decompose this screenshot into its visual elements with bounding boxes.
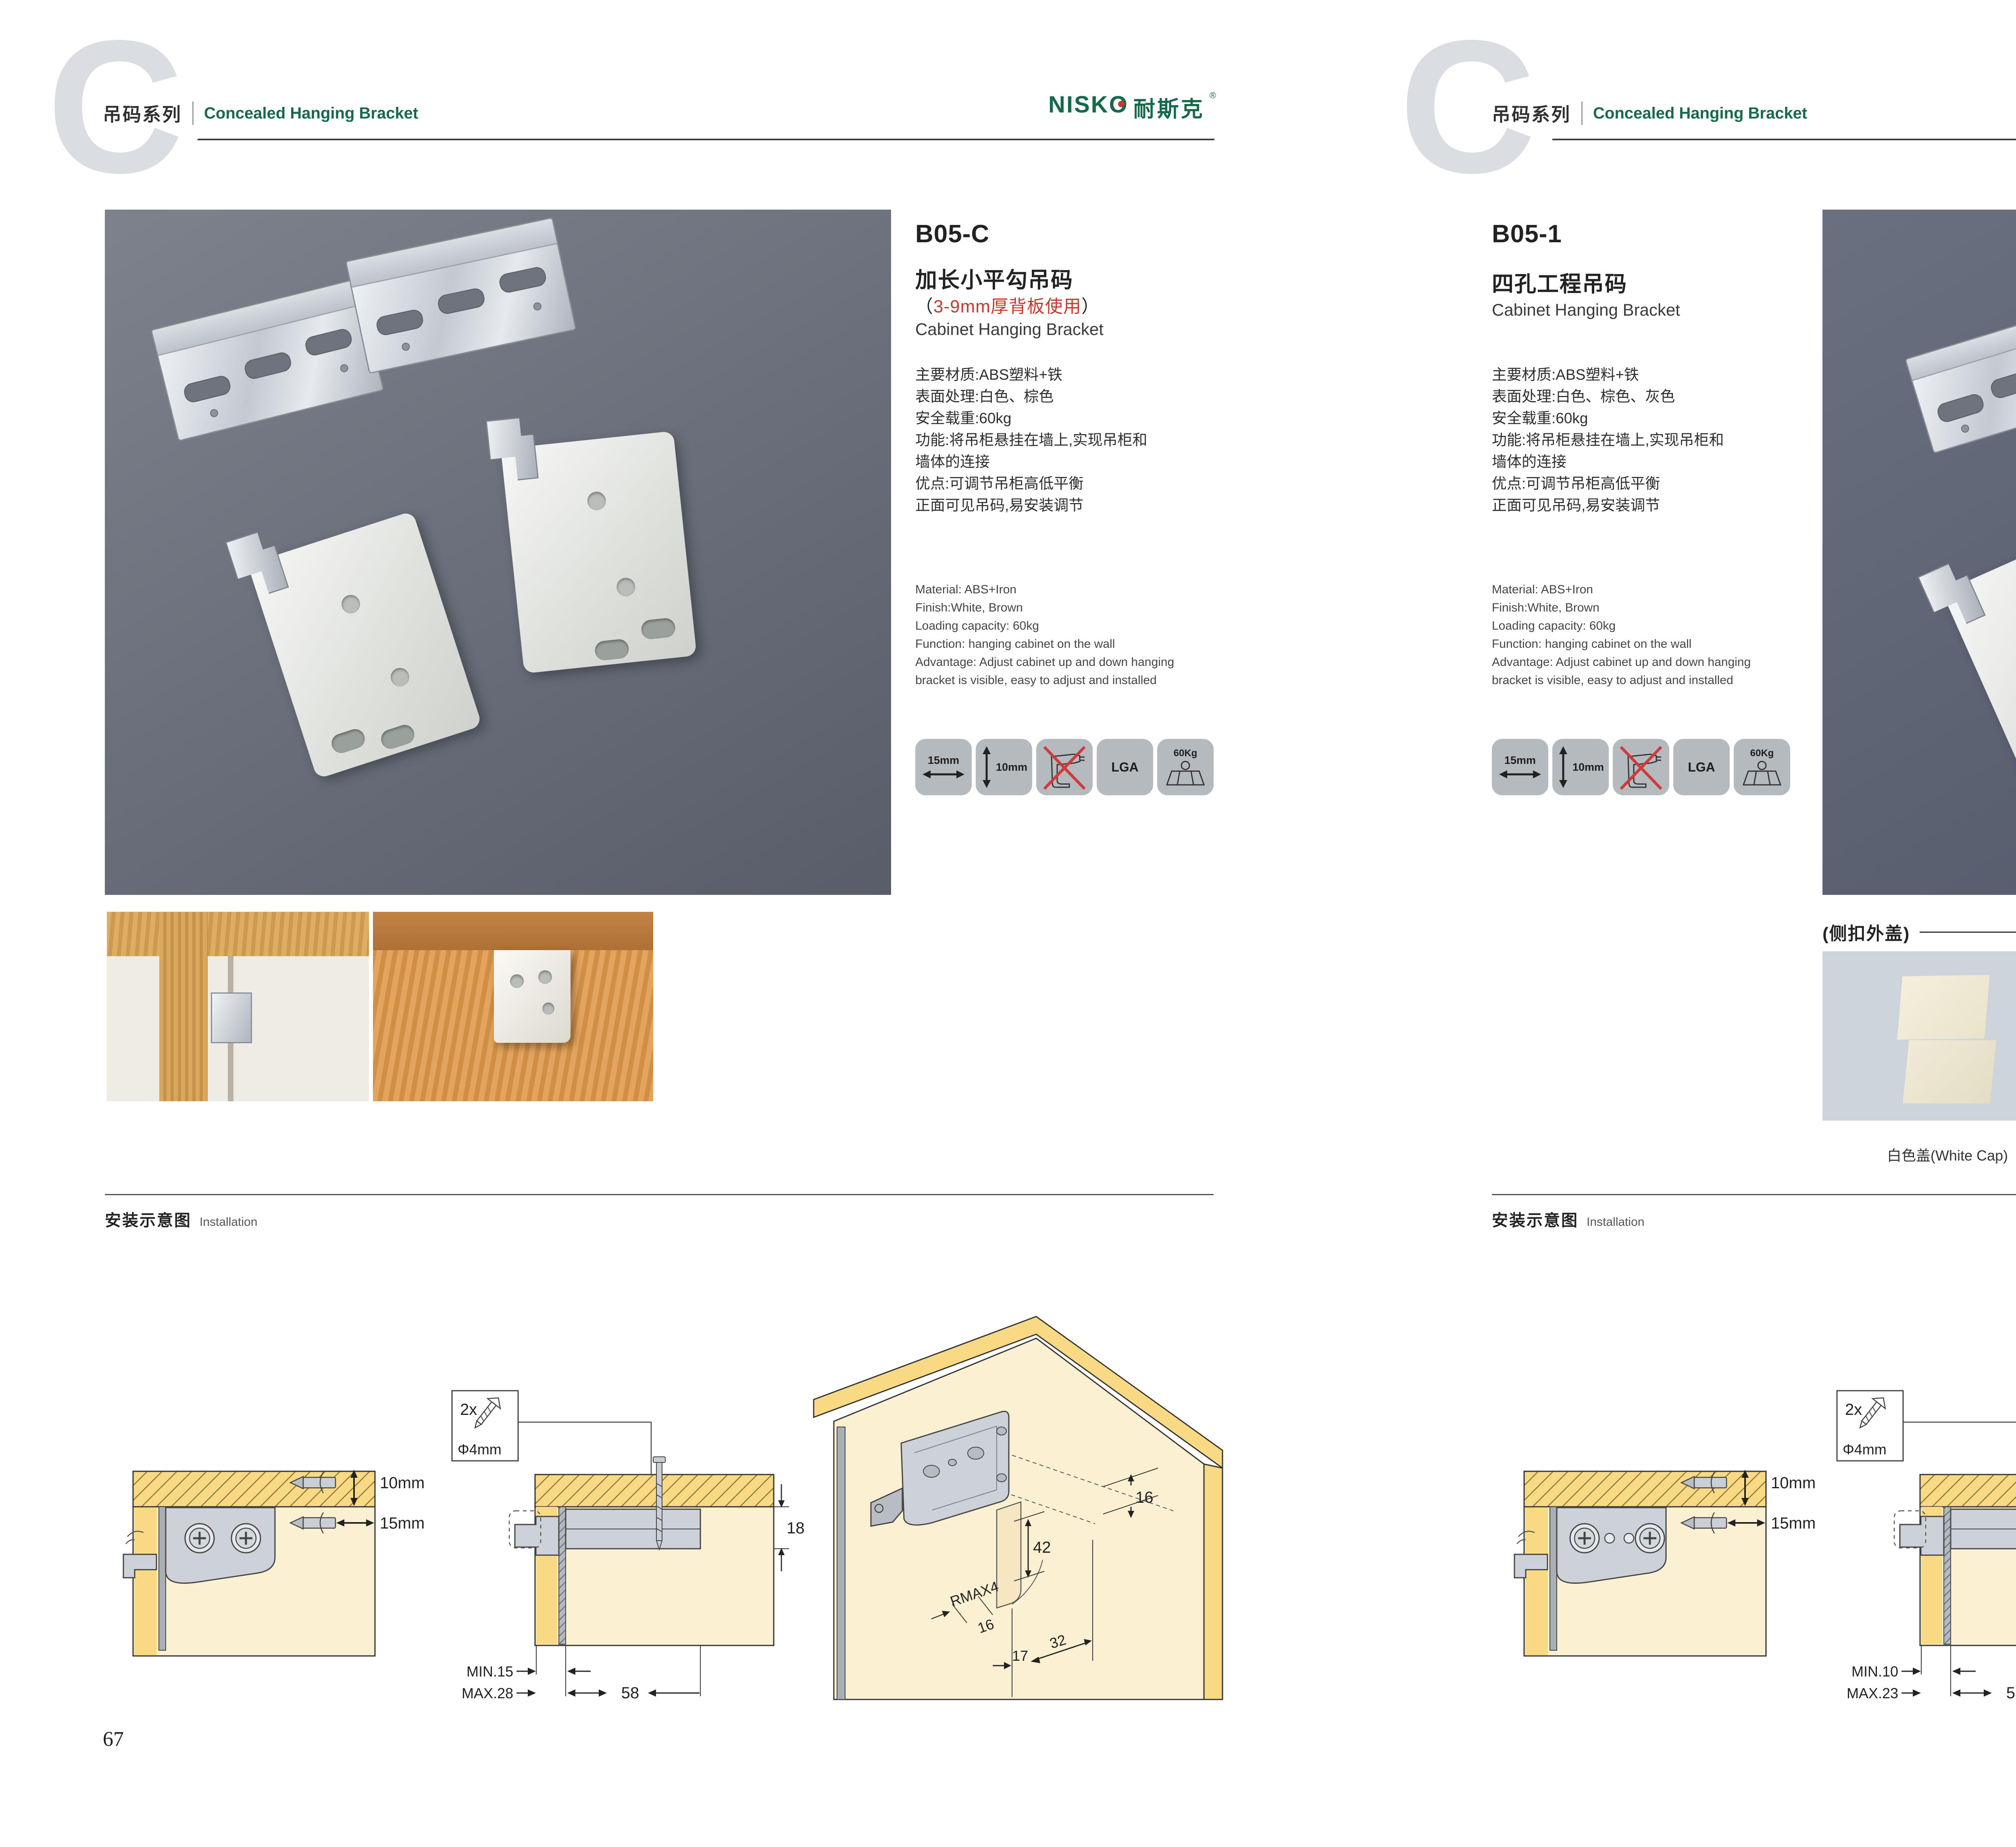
diagram-front-section: 2x Φ4mm 18 MIN.15 MAX.28 [442, 1383, 812, 1705]
white-bracket-body [501, 431, 697, 674]
plate-slot [182, 374, 232, 404]
series-subtitle: Concealed Hanging Bracket [204, 104, 418, 123]
diagram-front-section: 2x Φ4mm 18 MIN.10 MAX.23 [1826, 1383, 2016, 1705]
plate-slot [243, 351, 293, 381]
cap-caption: 白色盖(White Cap) [1822, 1144, 2016, 1165]
load-60kg-icon: 60Kg [1734, 739, 1790, 795]
plate-slot [1989, 368, 2016, 400]
page-number: 67 [103, 1727, 124, 1751]
plate-hole [533, 302, 542, 311]
diagram-perspective: 16 42 RMAX4 16 17 32 [810, 1282, 1230, 1709]
screw-qty: 2x [1845, 1401, 1862, 1419]
catalog-spread: C 吊码系列 Concealed Hanging Bracket NISKO 耐… [0, 0, 2016, 1847]
installation-title-cn: 安装示意图 [105, 1207, 192, 1231]
product-note: （3-9mm厚背板使用） [915, 292, 1100, 318]
spec-line: bracket is visible, easy to adjust and i… [915, 671, 1174, 689]
series-title: 吊码系列 [1492, 100, 1571, 127]
no-drill-icon [1613, 739, 1669, 795]
dim-max: MAX.23 [1847, 1685, 1898, 1701]
dim-16-top: 16 [1135, 1489, 1154, 1506]
installation-header: 安装示意图 Installation [1492, 1207, 1644, 1231]
spec-line: Finish:White, Brown [915, 599, 1174, 617]
spec-line: bracket is visible, easy to adjust and i… [1492, 671, 1751, 689]
page-header: 吊码系列 Concealed Hanging Bracket [103, 100, 418, 127]
dim-58: 58 [2006, 1684, 2016, 1702]
series-subtitle: Concealed Hanging Bracket [1593, 104, 1807, 123]
spec-line: Material: ABS+Iron [915, 580, 1174, 599]
cap-bottom [1899, 1036, 1999, 1108]
bracket-hook [1917, 558, 1985, 634]
bracket-hole [1605, 1533, 1614, 1543]
product-name-en: Cabinet Hanging Bracket [1492, 300, 1680, 320]
dim-min: MIN.10 [1851, 1663, 1898, 1680]
metal-rail-plate [345, 217, 577, 374]
dim-min: MIN.15 [467, 1663, 513, 1680]
icon-label: 10mm [1572, 761, 1604, 774]
installation-rule [1492, 1194, 2016, 1195]
dim-10mm: 10mm [380, 1474, 425, 1492]
width-15mm-icon: 15mm [915, 739, 972, 795]
plate-hole [401, 342, 411, 352]
icon-label: 60Kg [1174, 748, 1198, 759]
v-arrow-icon [981, 746, 993, 788]
header-divider [192, 102, 194, 125]
product-code: B05-C [915, 220, 989, 248]
dim-15mm: 15mm [380, 1514, 425, 1532]
page-67: C 吊码系列 Concealed Hanging Bracket NISKO 耐… [0, 0, 1352, 1847]
spec-line: Function: hanging cabinet on the wall [1492, 635, 1751, 653]
icon-label: LGA [1688, 760, 1715, 775]
series-title: 吊码系列 [103, 100, 182, 127]
height-10mm-icon: 10mm [1552, 739, 1609, 795]
spec-line: Advantage: Adjust cabinet up and down ha… [915, 653, 1174, 671]
no-drill-glyph [1041, 744, 1088, 790]
v-arrow-icon [1557, 746, 1569, 788]
cap-photo-white [1822, 951, 2016, 1121]
bracket-oval-hole [329, 727, 367, 756]
plate-hole [1960, 424, 1970, 434]
dim-58: 58 [621, 1684, 639, 1702]
product-name-cn: 四孔工程吊码 [1492, 266, 1627, 298]
icon-label: LGA [1111, 760, 1139, 775]
spec-line: 表面处理:白色、棕色、灰色 [1492, 386, 1724, 408]
screw [1635, 1524, 1664, 1553]
application-photo-bracket [373, 912, 653, 1101]
specs-cn: 主要材质:ABS塑料+铁 表面处理:白色、棕色 安全载重:60kg 功能:将吊柜… [915, 364, 1148, 516]
product-photo-b051 [1822, 210, 2016, 895]
plate-hole [339, 363, 349, 373]
wood-rail-top [107, 912, 369, 956]
height-10mm-icon: 10mm [976, 739, 1032, 795]
bracket-hole [339, 593, 362, 616]
wall-rail [837, 1427, 845, 1699]
icon-label: 15mm [1504, 754, 1536, 767]
bracket-hole [586, 491, 607, 512]
caps-rule [1920, 932, 2016, 933]
spec-line: Function: hanging cabinet on the wall [915, 635, 1174, 653]
bracket-hook [225, 528, 289, 602]
product-note-red: 3-9mm厚背板使用 [933, 297, 1081, 316]
hook-profile [515, 1516, 559, 1555]
plate-hole [209, 408, 219, 418]
installation-title-en: Installation [200, 1215, 257, 1229]
bracket-oval-hole [594, 639, 630, 661]
spec-line: 优点:可调节吊柜高低平衡 [915, 473, 1148, 495]
bracket-hole [1624, 1533, 1634, 1543]
cap-top [1893, 970, 1994, 1044]
icon-label: 60Kg [1750, 748, 1774, 759]
installation-header: 安装示意图 Installation [105, 1207, 257, 1231]
bracket-hole [616, 577, 636, 597]
installation-title-cn: 安装示意图 [1492, 1207, 1579, 1231]
spec-line: 主要材质:ABS塑料+铁 [915, 364, 1148, 386]
screw-qty: 2x [460, 1401, 477, 1419]
plate-slot [304, 327, 354, 358]
no-drill-icon [1036, 739, 1093, 795]
dim-17: 17 [1012, 1647, 1028, 1664]
bracket-oval-hole [379, 722, 417, 751]
brand-logo-cn: 耐斯克 [1133, 91, 1205, 123]
product-photo-b05c [105, 210, 891, 895]
spec-line: Loading capacity: 60kg [1492, 617, 1751, 635]
bracket-screw [542, 1003, 554, 1015]
h-arrow-icon [923, 768, 964, 780]
metal-rail-plate [150, 279, 384, 442]
white-bracket-installed [494, 950, 571, 1043]
installation-title-en: Installation [1587, 1215, 1644, 1229]
width-15mm-icon: 15mm [1492, 739, 1548, 795]
bracket-hole [388, 666, 412, 689]
white-bracket-body [248, 511, 482, 779]
feature-icons: 15mm 10mm LGA 60Kg [1492, 739, 1790, 795]
dim-max: MAX.28 [462, 1685, 513, 1701]
installation-rule [105, 1194, 1214, 1195]
spec-line: 正面可见吊码,易安装调节 [915, 495, 1148, 516]
bracket-hook [485, 416, 539, 483]
bracket-screw [538, 970, 552, 984]
spec-line: Finish:White, Brown [1492, 599, 1751, 617]
header-divider [1581, 102, 1583, 125]
header-rule [198, 139, 1214, 140]
weight-icon [1165, 761, 1206, 786]
icon-label: 10mm [996, 761, 1027, 774]
dim-18: 18 [787, 1519, 805, 1537]
screw-dia: Φ4mm [1843, 1441, 1887, 1458]
application-photo-hook [107, 912, 369, 1101]
dim-42: 42 [1033, 1539, 1051, 1556]
spec-line: 安全载重:60kg [915, 408, 1148, 429]
caps-label: (侧扣外盖) [1822, 919, 1910, 945]
page-68: C 吊码系列 Concealed Hanging Bracket NISKO 耐… [1352, 0, 2016, 1847]
spec-line: 安全载重:60kg [1492, 408, 1724, 429]
bracket-screw [510, 974, 524, 988]
feature-icons: 15mm 10mm LGA 60Kg [915, 739, 1214, 795]
load-60kg-icon: 60Kg [1157, 739, 1214, 795]
screw [185, 1524, 214, 1553]
diagram-side-section: 10mm 15mm [1508, 1435, 1847, 1677]
icon-label: 15mm [928, 754, 959, 767]
spec-line: 主要材质:ABS塑料+铁 [1492, 364, 1724, 386]
lga-cert-icon: LGA [1097, 739, 1153, 795]
page-header: 吊码系列 Concealed Hanging Bracket [1492, 100, 1807, 127]
bracket-oval-hole [640, 617, 676, 640]
white-bracket-body [1942, 516, 2016, 799]
plate-slot [375, 308, 425, 337]
plate-slot [1935, 392, 1986, 424]
product-name-cn: 加长小平勾吊码 [915, 262, 1073, 294]
cabinet-bottom-edge [373, 912, 653, 950]
weight-icon [1742, 761, 1782, 786]
spec-line: Advantage: Adjust cabinet up and down ha… [1492, 653, 1751, 671]
plate-slot [498, 266, 548, 294]
specs-en: Material: ABS+Iron Finish:White, Brown L… [915, 580, 1174, 689]
spec-line: 墙体的连接 [1492, 451, 1724, 473]
registered-mark: ® [1210, 90, 1216, 101]
dim-15mm: 15mm [1771, 1514, 1816, 1532]
logo-dot-icon [1118, 101, 1125, 107]
spec-line: 功能:将吊柜悬挂在墙上,实现吊柜和 [915, 429, 1148, 451]
metal-hook-clip [211, 992, 252, 1043]
spec-line: Loading capacity: 60kg [915, 617, 1174, 635]
spec-line: 墙体的连接 [915, 451, 1148, 473]
hook-profile [1900, 1516, 1944, 1555]
caps-header: (侧扣外盖) [1822, 919, 2016, 945]
specs-en: Material: ABS+Iron Finish:White, Brown L… [1492, 580, 1751, 689]
screw [1570, 1524, 1599, 1553]
no-drill-glyph [1618, 744, 1664, 790]
screw-dia: Φ4mm [458, 1441, 502, 1458]
wood-stile [159, 912, 208, 1101]
product-code: B05-1 [1492, 220, 1562, 248]
h-arrow-icon [1499, 768, 1541, 780]
cabinet-side-wall [1204, 1464, 1223, 1699]
plate-flange [1906, 308, 2016, 381]
header-rule [1552, 139, 2016, 140]
back-panel-slot [997, 1502, 1021, 1608]
lga-cert-icon: LGA [1673, 739, 1730, 795]
plate-slot [436, 287, 486, 316]
dim-10mm: 10mm [1771, 1474, 1816, 1492]
metal-rail-plate [1905, 306, 2016, 454]
spec-line: 表面处理:白色、棕色 [915, 386, 1148, 408]
screw [231, 1524, 260, 1553]
spec-line: Material: ABS+Iron [1492, 580, 1751, 599]
brand-logo-text: NISKO [1048, 91, 1129, 118]
spec-line: 优点:可调节吊柜高低平衡 [1492, 473, 1724, 495]
spec-line: 正面可见吊码,易安装调节 [1492, 495, 1724, 516]
specs-cn: 主要材质:ABS塑料+铁 表面处理:白色、棕色、灰色 安全载重:60kg 功能:… [1492, 364, 1724, 516]
diagram-side-section: 10mm 15mm [117, 1435, 456, 1677]
brand-logo: NISKO 耐斯克 ® [1048, 91, 1216, 123]
spec-line: 功能:将吊柜悬挂在墙上,实现吊柜和 [1492, 429, 1724, 451]
product-name-en: Cabinet Hanging Bracket [915, 320, 1104, 339]
